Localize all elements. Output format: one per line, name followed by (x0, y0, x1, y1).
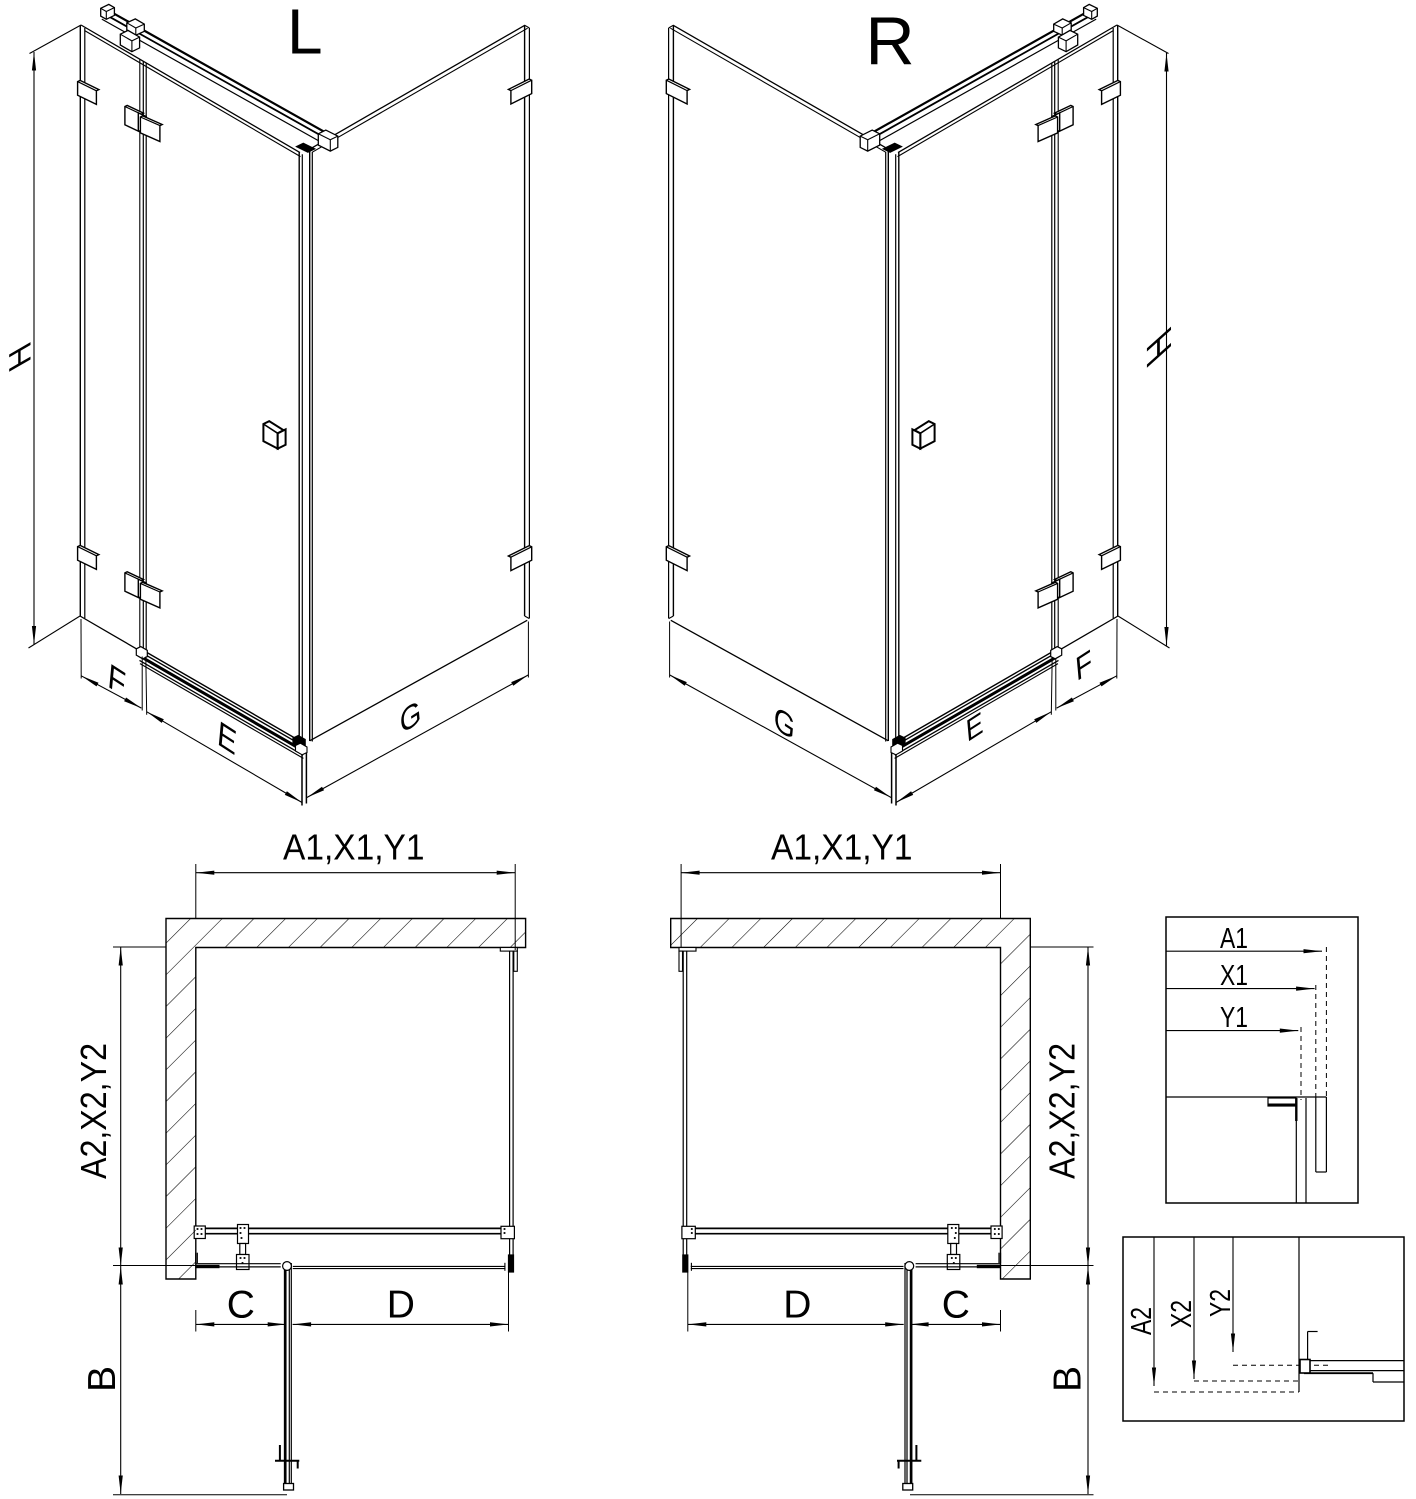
svg-text:R: R (866, 4, 915, 80)
svg-text:X2: X2 (1166, 1300, 1198, 1328)
svg-text:B: B (1047, 1366, 1090, 1392)
svg-text:A1: A1 (1220, 923, 1248, 955)
svg-text:C: C (227, 1284, 255, 1327)
svg-text:A2,X2,Y2: A2,X2,Y2 (1042, 1043, 1083, 1179)
svg-text:C: C (942, 1284, 970, 1327)
svg-text:L: L (287, 0, 323, 68)
svg-text:B: B (81, 1366, 124, 1392)
svg-text:D: D (387, 1284, 415, 1327)
svg-text:Y2: Y2 (1205, 1289, 1237, 1317)
svg-text:A2,X2,Y2: A2,X2,Y2 (73, 1043, 114, 1179)
svg-text:A1,X1,Y1: A1,X1,Y1 (283, 827, 425, 868)
svg-text:X1: X1 (1220, 960, 1248, 992)
svg-text:D: D (783, 1284, 811, 1327)
svg-text:A2: A2 (1126, 1307, 1158, 1335)
svg-text:A1,X1,Y1: A1,X1,Y1 (771, 827, 913, 868)
svg-text:Y1: Y1 (1220, 1002, 1248, 1034)
